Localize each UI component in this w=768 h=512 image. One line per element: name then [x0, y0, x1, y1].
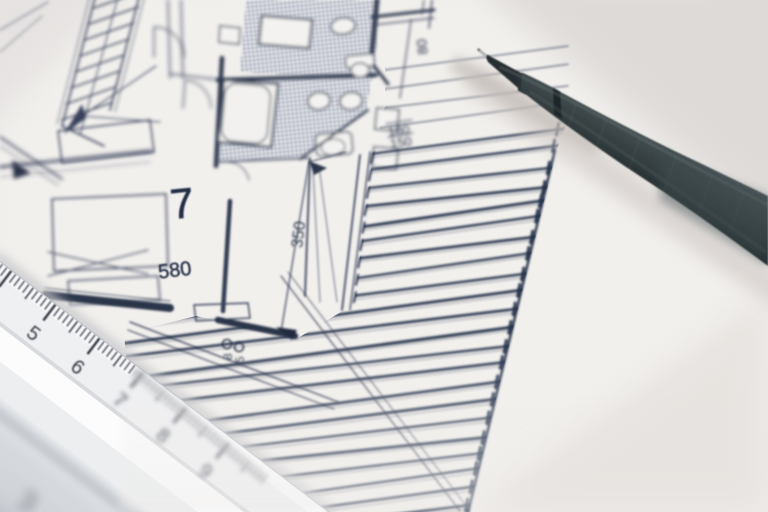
- svg-text:80: 80: [413, 38, 431, 56]
- svg-text:580: 580: [157, 258, 193, 284]
- svg-text:7: 7: [168, 179, 196, 228]
- svg-text:350: 350: [289, 220, 309, 249]
